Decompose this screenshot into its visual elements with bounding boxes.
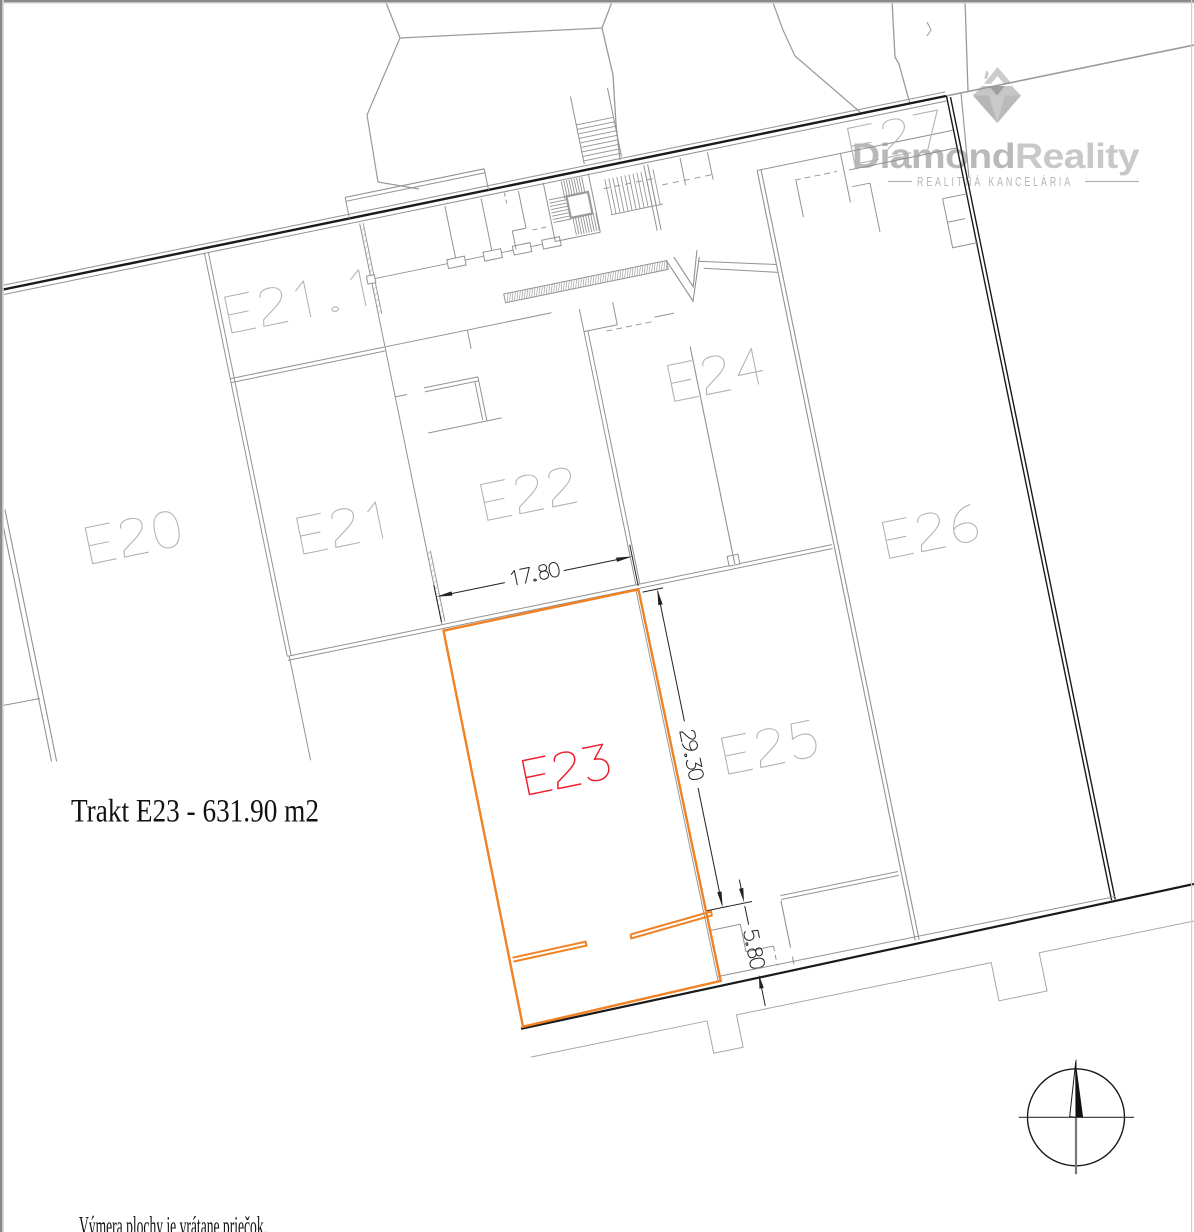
svg-text:REALITNÁ KANCELÁRIA: REALITNÁ KANCELÁRIA bbox=[917, 174, 1073, 189]
svg-text:Trakt E23 - 631.90 m2: Trakt E23 - 631.90 m2 bbox=[71, 794, 319, 830]
svg-text:Výmera plochy je vrátane prieč: Výmera plochy je vrátane priečok. bbox=[79, 1212, 267, 1232]
